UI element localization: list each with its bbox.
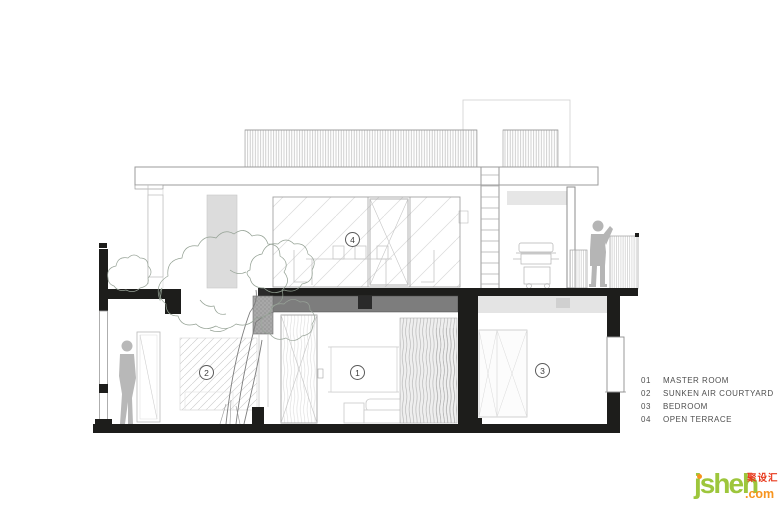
upper-left-window [148,195,163,277]
master-room [281,315,457,423]
room-marker-master: 1 [350,365,365,380]
roof-parapet-screen [245,130,558,167]
room-marker-courtyard: 2 [199,365,214,380]
legend-item-courtyard: 02 SUNKEN AIR COURTYARD [641,387,774,400]
upper-curtain-panel [207,195,237,288]
legend-num: 02 [641,387,663,400]
room-marker-terrace: 4 [345,232,360,247]
room-marker-label: 4 [350,235,355,245]
legend-num: 01 [641,374,663,387]
bedroom-wardrobe [479,330,527,417]
entry-canopy [108,289,181,314]
person-silhouette-terrace [589,221,613,288]
bedroom [479,296,626,424]
glass-wall [273,197,460,287]
legend: 01 MASTER ROOM 02 SUNKEN AIR COURTYARD 0… [641,374,774,426]
legend-num: 04 [641,413,663,426]
interior-beam [507,191,567,205]
room-marker-bedroom: 3 [535,363,550,378]
logo-tld-text: .com [745,487,774,501]
room-marker-label: 2 [204,368,209,378]
bbq-grill [513,243,559,288]
left-boundary-wall [99,243,108,424]
logo-j-dot-icon [697,474,702,479]
architectural-section-drawing [0,0,780,506]
section-drawing-page: 1 2 3 4 01 MASTER ROOM 02 SUNKEN AIR COU… [0,0,780,506]
room-marker-label: 1 [355,368,360,378]
legend-item-master: 01 MASTER ROOM [641,374,774,387]
legend-item-bedroom: 03 BEDROOM [641,400,774,413]
legend-label: BEDROOM [663,400,708,413]
legend-num: 03 [641,400,663,413]
legend-label: SUNKEN AIR COURTYARD [663,387,774,400]
roof-slab [135,167,598,189]
bedroom-ceiling [478,296,608,313]
jsheh-watermark-logo: jsheh 聚设汇 .com [694,466,780,506]
bedroom-window [607,337,624,392]
upper-floor-walls [148,185,163,288]
shrub-left [108,255,151,292]
room-marker-label: 3 [540,366,545,376]
legend-item-terrace: 04 OPEN TERRACE [641,413,774,426]
legend-label: MASTER ROOM [663,374,729,387]
partition-wall [458,296,482,425]
legend-label: OPEN TERRACE [663,413,732,426]
person-silhouette-courtyard [119,341,136,425]
logo-chinese-text: 聚设汇 [747,470,779,484]
